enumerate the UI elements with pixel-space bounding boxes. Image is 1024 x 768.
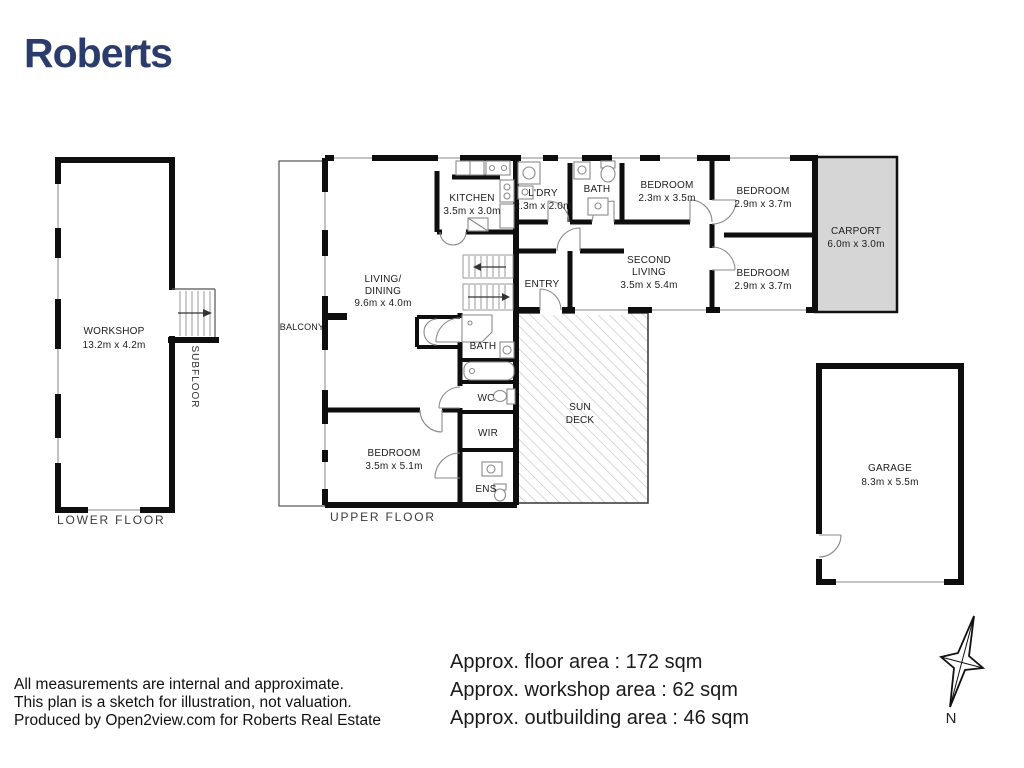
garage-plan: GARAGE 8.3m x 5.5m [814,366,961,587]
subfloor-label: SUBFLOOR [189,345,200,408]
laundry-dims: 2.3m x 2.0m [514,201,571,212]
bath-top-label: BATH [584,184,611,195]
upper-stairs [463,255,513,310]
kitchen-fridge [500,204,514,228]
bedroom-right-upper-label: BEDROOM [736,186,789,197]
second-living-dims: 3.5m x 5.4m [620,280,677,291]
carport-label: CARPORT [831,226,881,237]
second-living-label-2: LIVING [632,267,666,278]
living-dining-label-1: LIVING/ [365,274,402,285]
outbuilding-area-line: Approx. outbuilding area : 46 sqm [450,704,749,732]
compass-north-label: N [946,710,957,727]
bedroom-right-lower-label: BEDROOM [736,268,789,279]
bath-mid-shower [462,315,492,342]
garage-label: GARAGE [868,463,912,474]
floor-area-line: Approx. floor area : 172 sqm [450,648,749,676]
bedroom-lower-dims: 3.5m x 5.1m [365,461,422,472]
wc-toilet [494,391,507,402]
lower-floor-label: LOWER FLOOR [57,513,165,527]
workshop-stair-opening [167,290,178,336]
lower-floor-plan: WORKSHOP 13.2m x 4.2m SUBFLOOR LOWER FLO… [53,160,219,527]
ens-label: ENS [475,484,496,495]
stair-down-arrow-icon [502,293,510,301]
carport-dims: 6.0m x 3.0m [827,239,884,250]
workshop-dims: 13.2m x 4.2m [83,340,146,351]
disclaimer-line-1: All measurements are internal and approx… [14,676,381,694]
kitchen-dims: 3.5m x 3.0m [443,206,500,217]
disclaimer-line-2: This plan is a sketch for illustration, … [14,694,381,712]
bedroom-right-lower-dims: 2.9m x 3.7m [734,281,791,292]
disclaimer-text: All measurements are internal and approx… [14,676,381,731]
bath-top-toilet [601,166,615,182]
balcony-label: BALCONY [280,322,324,332]
living-dining-label-2: DINING [365,286,401,297]
kitchen-label: KITCHEN [449,193,494,204]
wc-cistern [507,389,515,404]
bedroom-top-dims: 2.3m x 3.5m [638,193,695,204]
wir-label: WIR [478,428,498,439]
laundry-label: L'DRY [528,188,558,199]
garage-dims: 8.3m x 5.5m [861,477,918,488]
compass: N [941,616,983,727]
bedroom-right-upper-dims: 2.9m x 3.7m [734,199,791,210]
disclaimer-line-3: Produced by Open2view.com for Roberts Re… [14,712,381,730]
bath-mid-label: BATH [470,341,497,352]
stair-up-arrow-icon [473,263,481,271]
second-living-label-1: SECOND [627,255,671,266]
living-dining-dims: 9.6m x 4.0m [354,298,411,309]
upper-floor-label: UPPER FLOOR [330,510,436,524]
bedroom-lower-label: BEDROOM [367,448,420,459]
wc-label: WC [477,393,494,404]
sun-deck-label-1: SUN [569,402,591,413]
floorplan-page: { "brand": {"name": "Roberts", "color": … [0,0,1024,768]
sun-deck-label-2: DECK [566,415,595,426]
garage-walls [819,366,961,582]
entry-label: ENTRY [525,279,560,290]
area-summary: Approx. floor area : 172 sqm Approx. wor… [450,648,749,732]
balcony-area [279,161,325,506]
stair-arrow-icon [203,309,212,317]
bedroom-top-label: BEDROOM [640,180,693,191]
workshop-label: WORKSHOP [83,326,144,337]
workshop-area-line: Approx. workshop area : 62 sqm [450,676,749,704]
upper-floor-plan: BALCONY LIVING/ DINING 9.6m x 4.0m KITCH… [279,154,897,524]
